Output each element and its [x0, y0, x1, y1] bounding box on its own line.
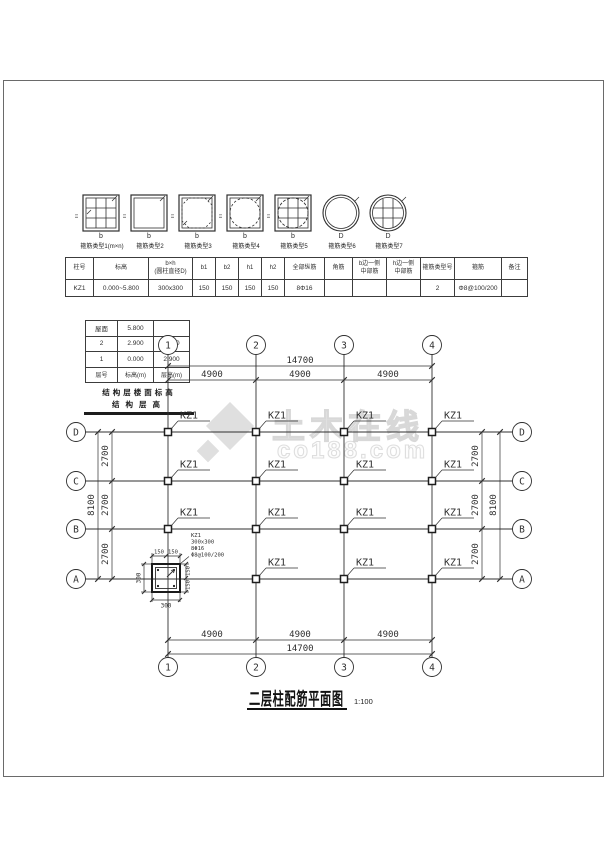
dimension-bottom: 4900 4900 4900 14700 [165, 630, 435, 657]
stirrup-type-3-section: h b [171, 192, 221, 240]
diameter-label: D [338, 233, 343, 240]
grid-bubbles-left: D C B A [67, 423, 86, 589]
dim-top-seg-2: 4900 [289, 370, 311, 380]
dim-left-seg-1: 2700 [101, 445, 111, 467]
drawing-title-underline [247, 708, 347, 710]
cell-h-side-middle [387, 280, 421, 297]
grid-bubble-D-left: D [73, 428, 79, 439]
detail-name: KZ1 [191, 533, 201, 539]
column-label: KZ1 [444, 411, 462, 422]
cell-b-side-middle [353, 280, 387, 297]
detail-rebar: 8Φ16 [191, 546, 204, 552]
schedule-data-row: KZ1 0.000~5.800 300x300 150 150 150 150 … [66, 280, 528, 297]
width-label: b [99, 233, 103, 240]
header-column-id: 柱号 [66, 258, 94, 280]
detail-dim-150-bottom: 150 [186, 580, 192, 590]
stirrup-type-4-section: h b [219, 192, 269, 240]
dim-left-seg-3: 2700 [101, 543, 111, 565]
grid-bubble-B-left: B [73, 525, 79, 536]
header-h-side-middle: h边一侧 中部筋 [387, 258, 421, 280]
grid-bubbles-bottom: 1 2 3 4 [159, 658, 442, 677]
dim-right-seg-2: 2700 [471, 494, 481, 516]
height-label: h [171, 214, 176, 218]
grid-lines [85, 354, 514, 658]
diameter-label: D [385, 233, 390, 240]
width-label: b [243, 233, 247, 240]
header-b2: b2 [216, 258, 239, 280]
cell-h1: 150 [239, 280, 262, 297]
detail-stirrup: Φ8@100/200 [191, 553, 224, 559]
column-markers [165, 429, 436, 583]
column-detail: 150 150 150 150 300 300 KZ1 300x300 8Φ16… [136, 533, 225, 610]
dim-right-seg-1: 2700 [471, 445, 481, 467]
dim-right-seg-3: 2700 [471, 543, 481, 565]
header-stirrup: 箍筋 [455, 258, 502, 280]
header-stirrup-type: 箍筋类型号 [421, 258, 455, 280]
dim-bottom-seg-2: 4900 [289, 630, 311, 640]
column-label: KZ1 [444, 508, 462, 519]
column-label: KZ1 [356, 460, 374, 471]
column-plan-drawing: 14700 4900 4900 4900 4900 4900 4900 1470… [40, 330, 580, 690]
grid-bubble-1: 1 [165, 341, 171, 352]
grid-bubble-4: 4 [429, 341, 435, 352]
height-label: h [123, 214, 128, 218]
stirrup-type-1-section: h b [75, 192, 125, 240]
width-label: b [291, 233, 295, 240]
grid-bubble-2b: 2 [253, 663, 259, 674]
stirrup-type-7-section: D [362, 192, 412, 240]
dim-right-total: 8100 [489, 494, 499, 516]
cell-stirrup: Φ8@100/200 [455, 280, 502, 297]
header-all-rebar: 全部纵筋 [285, 258, 325, 280]
header-corner-rebar: 角筋 [325, 258, 353, 280]
dimension-left: 8100 2700 2700 2700 [87, 429, 115, 582]
detail-dim-150-top: 150 [186, 566, 192, 576]
cell-corner-rebar [325, 280, 353, 297]
detail-dim-height: 300 [136, 572, 143, 583]
grid-bubbles-right: D C B A [513, 423, 532, 589]
column-label: KZ1 [180, 508, 198, 519]
column-label: KZ1 [356, 558, 374, 569]
detail-dim-width: 300 [161, 603, 172, 610]
header-h1: h1 [239, 258, 262, 280]
column-label: KZ1 [444, 558, 462, 569]
detail-size: 300x300 [191, 540, 214, 546]
schedule-header-row: 柱号 标高 b×h (圆柱直径D) b1 b2 h1 h2 全部纵筋 角筋 b边… [66, 258, 528, 280]
cell-stirrup-type: 2 [421, 280, 455, 297]
cell-elevation: 0.000~5.800 [94, 280, 149, 297]
grid-bubble-A-right: A [519, 575, 525, 586]
width-label: b [147, 233, 151, 240]
cell-all-rebar: 8Φ16 [285, 280, 325, 297]
detail-dim-150-right: 150 [168, 550, 178, 556]
grid-bubble-C-right: C [519, 477, 525, 488]
height-label: h [267, 214, 272, 218]
drawing-scale: 1:100 [354, 697, 373, 706]
cell-notes [502, 280, 528, 297]
column-label: KZ1 [180, 411, 198, 422]
dim-bottom-seg-3: 4900 [377, 630, 399, 640]
dimension-top: 14700 4900 4900 4900 [165, 356, 435, 383]
dim-top-total: 14700 [286, 356, 313, 366]
dim-bottom-seg-1: 4900 [201, 630, 223, 640]
stirrup-type-7-label: 箍筋类型7 [359, 241, 419, 250]
header-b1: b1 [193, 258, 216, 280]
cell-b1: 150 [193, 280, 216, 297]
header-elevation: 标高 [94, 258, 149, 280]
column-label: KZ1 [268, 508, 286, 519]
detail-dim-150-left: 150 [154, 550, 164, 556]
column-label: KZ1 [356, 411, 374, 422]
width-label: b [195, 233, 199, 240]
grid-bubble-4b: 4 [429, 663, 435, 674]
column-label: KZ1 [444, 460, 462, 471]
grid-bubbles-top: 1 2 3 4 [159, 336, 442, 355]
grid-bubble-C-left: C [73, 477, 79, 488]
header-bxh: b×h (圆柱直径D) [149, 258, 193, 280]
stirrup-type-5-section: h b [267, 192, 317, 240]
stirrup-type-6-section: D [315, 192, 365, 240]
header-notes: 备注 [502, 258, 528, 280]
cell-bxh: 300x300 [149, 280, 193, 297]
height-label: h [219, 214, 224, 218]
column-label: KZ1 [268, 411, 286, 422]
column-label: KZ1 [356, 508, 374, 519]
grid-bubble-D-right: D [519, 428, 525, 439]
column-label: KZ1 [268, 558, 286, 569]
grid-bubble-2: 2 [253, 341, 259, 352]
dim-left-seg-2: 2700 [101, 494, 111, 516]
column-schedule-table: 柱号 标高 b×h (圆柱直径D) b1 b2 h1 h2 全部纵筋 角筋 b边… [65, 257, 528, 297]
grid-bubble-A-left: A [73, 575, 79, 586]
grid-bubble-3: 3 [341, 341, 347, 352]
column-label: KZ1 [180, 460, 198, 471]
grid-bubble-3b: 3 [341, 663, 347, 674]
dim-bottom-total: 14700 [286, 644, 313, 654]
dim-left-total: 8100 [87, 494, 97, 516]
column-label: KZ1 [268, 460, 286, 471]
cell-h2: 150 [262, 280, 285, 297]
grid-bubble-1b: 1 [165, 663, 171, 674]
cell-b2: 150 [216, 280, 239, 297]
header-h2: h2 [262, 258, 285, 280]
stirrup-type-2-section: h b [123, 192, 173, 240]
dim-top-seg-1: 4900 [201, 370, 223, 380]
height-label: h [75, 214, 80, 218]
dim-top-seg-3: 4900 [377, 370, 399, 380]
stirrup-type-7-diagram: D 箍筋类型7 [359, 192, 415, 250]
cell-column-id: KZ1 [66, 280, 94, 297]
grid-bubble-B-right: B [519, 525, 525, 536]
header-b-side-middle: b边一侧 中部筋 [353, 258, 387, 280]
dimension-right: 2700 2700 2700 8100 [471, 429, 503, 582]
